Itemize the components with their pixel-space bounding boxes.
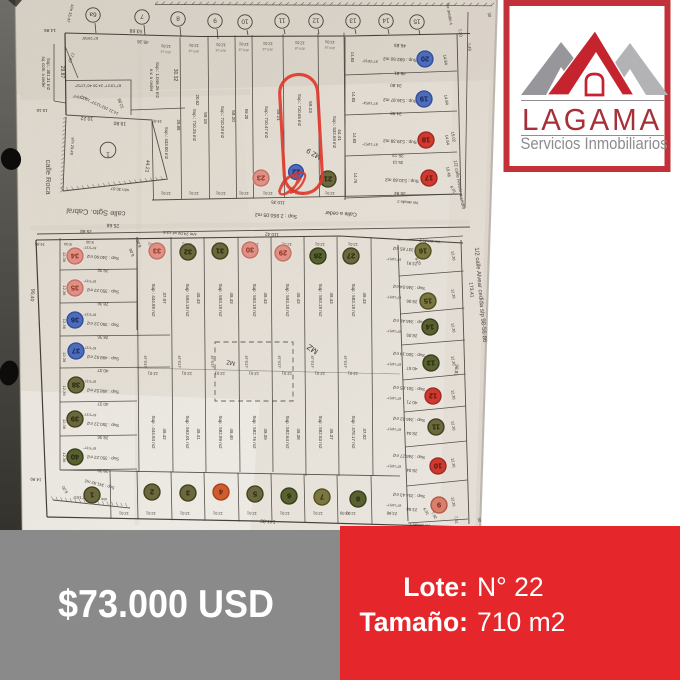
svg-text:JER.L8: JER.L8 [324, 45, 335, 50]
svg-text:49.43: 49.43 [362, 292, 367, 304]
svg-text:12.01: 12.01 [281, 371, 292, 377]
svg-text:49.40: 49.40 [229, 428, 234, 440]
svg-text:12.01: 12.01 [279, 511, 290, 517]
svg-text:12.01: 12.01 [160, 191, 171, 197]
svg-text:14.86: 14.86 [44, 27, 56, 33]
svg-text:20: 20 [421, 54, 429, 63]
svg-text:49.43: 49.43 [263, 292, 268, 304]
svg-text:14.99: 14.99 [30, 477, 42, 483]
svg-text:Sup.: 710.25 m2: Sup.: 710.25 m2 [192, 109, 197, 142]
svg-text:13.09: 13.09 [339, 511, 350, 517]
svg-text:34: 34 [70, 251, 79, 260]
svg-text:14.76: 14.76 [353, 173, 358, 184]
svg-text:21: 21 [324, 174, 332, 183]
svg-text:23,68: 23,68 [386, 511, 397, 517]
svg-text:15: 15 [413, 18, 421, 25]
svg-text:36: 36 [71, 315, 79, 324]
svg-text:28.36: 28.36 [97, 268, 109, 274]
svg-text:12.01: 12.01 [314, 242, 325, 248]
svg-text:44.21: 44.21 [143, 160, 150, 173]
svg-text:35.13: 35.13 [392, 153, 404, 159]
svg-text:87°19'57": 87°19'57" [361, 142, 377, 147]
svg-text:38: 38 [72, 380, 80, 389]
svg-text:sq. com. a ceder: sq. com. a ceder [41, 57, 46, 89]
svg-text:Sup.: 1.046.26 m2: Sup.: 1.046.26 m2 [155, 62, 160, 98]
svg-text:28.04: 28.04 [406, 431, 418, 437]
svg-text:12.01: 12.01 [214, 371, 225, 377]
svg-text:87°29'08": 87°29'08" [81, 36, 98, 40]
svg-text:53.68: 53.68 [129, 27, 142, 34]
svg-text:Tamaño:: Tamaño: [360, 607, 468, 637]
svg-text:49.43: 49.43 [229, 292, 234, 304]
svg-text:Sup : 582.53 m2: Sup : 582.53 m2 [318, 415, 323, 449]
svg-text:87°19'27" 24.50 46°12'52": 87°19'27" 24.50 46°12'52" [74, 84, 121, 89]
svg-text:40.37: 40.37 [97, 401, 109, 407]
svg-text:12.01: 12.01 [145, 511, 156, 517]
svg-text:35.13: 35.13 [392, 160, 403, 166]
svg-text:JER.L8: JER.L8 [294, 46, 305, 51]
svg-text:8.00: 8.00 [86, 240, 94, 245]
svg-text:Sup.: 532.69 m2: Sup.: 532.69 m2 [332, 116, 337, 149]
svg-text:12.01: 12.01 [238, 41, 249, 47]
svg-text:14.83: 14.83 [350, 52, 355, 63]
svg-text:87°5'37": 87°5'37" [143, 356, 147, 369]
svg-text:Sup.: 433.00 m2: Sup.: 433.00 m2 [164, 127, 169, 160]
svg-text:Sup : 582.76 m2: Sup : 582.76 m2 [252, 415, 257, 449]
svg-text:49.43: 49.43 [329, 292, 334, 304]
svg-text:12.01: 12.01 [238, 191, 249, 197]
svg-text:12.01: 12.01 [118, 511, 129, 517]
svg-text:87°5'37": 87°5'37" [177, 356, 181, 369]
svg-text:59.20: 59.20 [244, 109, 249, 120]
svg-text:Sup : 444.89 m2: Sup : 444.89 m2 [151, 283, 156, 317]
svg-text:40.57: 40.57 [406, 366, 418, 372]
svg-text:Sup : 478.17 m2: Sup : 478.17 m2 [351, 415, 356, 449]
svg-text:23: 23 [257, 173, 265, 182]
svg-text:17: 17 [425, 173, 433, 182]
svg-text:12.01: 12.01 [262, 191, 273, 197]
svg-text:37: 37 [72, 346, 80, 355]
svg-text:37.07: 37.07 [162, 292, 167, 304]
svg-text:40.71: 40.71 [406, 400, 418, 406]
svg-text:18: 18 [422, 135, 430, 144]
svg-text:15: 15 [424, 296, 432, 305]
svg-text:29: 29 [279, 248, 287, 257]
svg-text:28.88: 28.88 [176, 120, 181, 132]
svg-text:Sup : 593.18 m2: Sup : 593.18 m2 [318, 283, 323, 317]
svg-text:49.41: 49.41 [196, 428, 201, 440]
svg-text:710 m2: 710 m2 [477, 607, 565, 637]
svg-text:12.36: 12.36 [62, 386, 67, 397]
svg-text:33: 33 [153, 246, 161, 255]
svg-text:12.01: 12.01 [188, 43, 199, 49]
svg-text:12.01: 12.01 [312, 511, 323, 517]
svg-text:7: 7 [140, 13, 144, 20]
svg-text:19: 19 [420, 94, 428, 103]
svg-text:Sup.: 710.47 m2: Sup.: 710.47 m2 [264, 106, 269, 139]
svg-text:12: 12 [312, 17, 320, 24]
svg-text:12.01: 12.01 [314, 371, 325, 377]
svg-text:49.37: 49.37 [329, 428, 334, 440]
svg-text:9: 9 [437, 500, 441, 509]
svg-text:6a: 6a [89, 11, 97, 18]
svg-text:30: 30 [246, 245, 254, 254]
svg-text:14: 14 [425, 322, 434, 331]
svg-text:37.02: 37.02 [362, 428, 367, 440]
svg-text:12.01: 12.01 [262, 41, 273, 47]
svg-text:14: 14 [382, 17, 390, 24]
svg-text:15.16: 15.16 [36, 108, 48, 113]
svg-text:12: 12 [429, 391, 437, 400]
svg-text:Sup : 593.18 m2: Sup : 593.18 m2 [218, 283, 223, 317]
svg-text:49.38: 49.38 [296, 428, 301, 440]
svg-text:87°5'37": 87°5'37" [244, 356, 248, 369]
svg-text:N° 22: N° 22 [477, 572, 544, 602]
svg-text:87°5'37": 87°5'37" [310, 356, 314, 369]
svg-text:27: 27 [347, 251, 355, 260]
svg-text:12.36: 12.36 [62, 352, 67, 363]
svg-text:Sup.: 710.29 m2: Sup.: 710.29 m2 [220, 106, 225, 139]
svg-text:12.01: 12.01 [347, 371, 358, 377]
svg-text:28.36: 28.36 [97, 435, 109, 441]
svg-text:12.01: 12.01 [188, 191, 199, 197]
svg-text:e.v. a ceder: e.v. a ceder [149, 69, 154, 92]
svg-text:59.23: 59.23 [308, 101, 313, 113]
svg-text:59.20: 59.20 [231, 110, 236, 122]
svg-text:12.01: 12.01 [160, 43, 171, 49]
svg-text:13: 13 [349, 17, 357, 24]
svg-text:calle Roca: calle Roca [44, 159, 53, 195]
svg-text:JER.L8: JER.L8 [160, 49, 171, 54]
svg-text:14.83: 14.83 [351, 92, 356, 103]
svg-text:34.96: 34.96 [390, 111, 402, 117]
svg-text:46.85: 46.85 [393, 42, 406, 49]
svg-text:Sup : 593.01 m2: Sup : 593.01 m2 [185, 415, 190, 449]
svg-text:45.16: 45.16 [137, 39, 149, 45]
svg-text:$73.000 USD: $73.000 USD [58, 583, 274, 626]
svg-text:10: 10 [241, 18, 249, 25]
svg-text:49.43: 49.43 [196, 292, 201, 304]
svg-text:Sup : 593.18 m2: Sup : 593.18 m2 [252, 283, 257, 317]
svg-text:28.36: 28.36 [97, 301, 109, 307]
svg-text:46.81: 46.81 [394, 71, 406, 77]
svg-text:34.80: 34.80 [390, 83, 402, 89]
svg-text:40: 40 [71, 452, 79, 461]
svg-text:23.68: 23.68 [406, 507, 418, 513]
svg-text:Sup : 582.64 m2: Sup : 582.64 m2 [285, 415, 290, 449]
svg-text:49.39: 49.39 [263, 428, 268, 440]
svg-text:10.22: 10.22 [80, 115, 93, 122]
svg-text:Sup : 593.18 m2: Sup : 593.18 m2 [285, 283, 290, 317]
svg-text:8: 8 [176, 15, 180, 22]
svg-text:12.01: 12.01 [324, 39, 335, 45]
svg-text:28.04: 28.04 [406, 468, 418, 474]
svg-text:44.41: 44.41 [337, 129, 342, 141]
svg-text:1: 1 [106, 150, 110, 157]
svg-text:Sup : 582.89 m2: Sup : 582.89 m2 [218, 415, 223, 449]
svg-text:10: 10 [434, 461, 442, 470]
svg-text:59.18: 59.18 [203, 112, 208, 124]
svg-text:31: 31 [216, 246, 224, 255]
svg-text:1: 1 [90, 490, 94, 499]
svg-text:14.83: 14.83 [352, 133, 357, 144]
svg-text:28.06: 28.06 [406, 299, 418, 305]
svg-text:12.01: 12.01 [181, 371, 192, 377]
svg-text:JER.L8: JER.L8 [238, 48, 249, 53]
svg-text:2: 2 [150, 487, 154, 496]
svg-text:8.04: 8.04 [64, 242, 72, 247]
svg-text:87°5'37": 87°5'37" [343, 356, 347, 369]
svg-text:16: 16 [419, 246, 427, 255]
svg-text:87°5'37": 87°5'37" [277, 356, 281, 369]
svg-text:39: 39 [71, 414, 79, 423]
svg-text:12.01: 12.01 [179, 511, 190, 517]
svg-text:87°29'16": 87°29'16" [361, 59, 377, 64]
svg-text:98,81: 98,81 [453, 364, 459, 376]
svg-text:49.42: 49.42 [162, 428, 167, 440]
svg-text:144.86: 144.86 [260, 517, 276, 524]
svg-text:JER.L8: JER.L8 [188, 49, 199, 54]
svg-text:40.37: 40.37 [97, 368, 109, 374]
svg-text:Sup : 583.18 m2: Sup : 583.18 m2 [351, 283, 356, 317]
svg-text:90,40: 90,40 [28, 289, 35, 302]
svg-text:Sup.: 710.65 m2: Sup.: 710.65 m2 [297, 94, 302, 127]
svg-text:12.01: 12.01 [347, 242, 358, 248]
svg-text:12.01: 12.01 [248, 371, 259, 377]
svg-text:87°5'37": 87°5'37" [210, 356, 214, 369]
svg-text:32: 32 [184, 247, 192, 256]
svg-text:6: 6 [287, 491, 291, 500]
svg-text:35: 35 [71, 283, 79, 292]
svg-text:Servicios Inmobiliarios: Servicios Inmobiliarios [521, 135, 668, 153]
svg-text:14.85: 14.85 [34, 242, 45, 248]
svg-text:12.01: 12.01 [147, 371, 158, 377]
svg-text:28.36: 28.36 [97, 334, 109, 340]
svg-text:28: 28 [314, 251, 322, 260]
svg-text:19.80: 19.80 [113, 120, 126, 127]
svg-text:110.35: 110.35 [271, 200, 285, 206]
svg-text:87°18'54": 87°18'54" [361, 101, 377, 106]
svg-text:9: 9 [213, 17, 217, 24]
svg-text:30.32: 30.32 [172, 69, 178, 82]
svg-text:8: 8 [356, 494, 360, 503]
svg-text:Sup : 593.18 m2: Sup : 593.18 m2 [185, 283, 190, 317]
svg-text:12.01: 12.01 [324, 191, 335, 197]
svg-text:JER.L8: JER.L8 [262, 47, 273, 52]
svg-text:29.87: 29.87 [59, 66, 65, 79]
svg-text:3: 3 [186, 488, 190, 497]
svg-text:11: 11 [278, 17, 285, 24]
svg-text:13: 13 [427, 358, 435, 367]
svg-text:12.01: 12.01 [215, 42, 226, 48]
svg-text:14.83: 14.83 [151, 119, 162, 125]
svg-text:28.05: 28.05 [406, 333, 418, 339]
svg-text:LAGAMA: LAGAMA [522, 102, 662, 137]
svg-text:Sup : 444.84 m2: Sup : 444.84 m2 [151, 415, 156, 449]
svg-text:49.43: 49.43 [296, 292, 301, 304]
svg-text:11: 11 [432, 422, 440, 431]
svg-text:12.01: 12.01 [212, 511, 223, 517]
svg-text:12.01: 12.01 [215, 191, 226, 197]
svg-text:Lote:: Lote: [403, 572, 468, 602]
svg-text:12.01: 12.01 [246, 511, 257, 517]
svg-text:7: 7 [320, 492, 324, 501]
svg-text:5: 5 [253, 489, 257, 498]
svg-text:JER.L8: JER.L8 [215, 48, 226, 53]
svg-text:25.68: 25.68 [106, 222, 119, 229]
svg-text:12.01: 12.01 [294, 40, 305, 46]
svg-text:20.52: 20.52 [195, 95, 200, 107]
